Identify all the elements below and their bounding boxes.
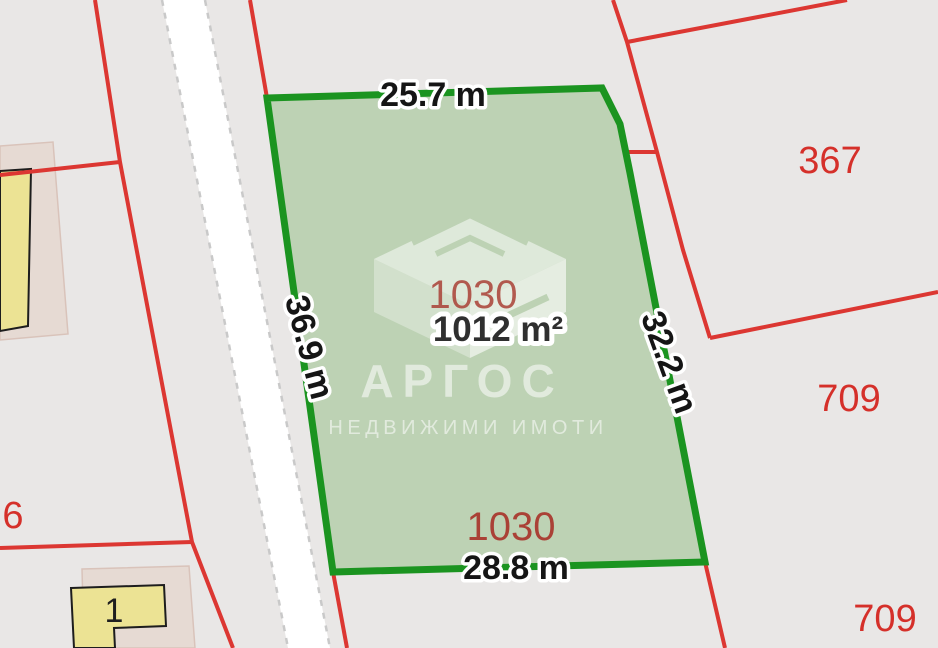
building-top-left — [0, 169, 31, 331]
map-canvas[interactable]: АРГОС НЕДВИЖИМИ ИМОТИ 1030 1012 m² 25.7 … — [0, 0, 938, 648]
watermark-tagline: НЕДВИЖИМИ ИМОТИ — [328, 417, 607, 439]
building-number-label: 1 — [105, 592, 124, 630]
parcel-709-right-label: 709 — [817, 378, 880, 420]
dimension-bottom-label: 28.8 m — [463, 549, 569, 587]
parcel-367-label: 367 — [798, 140, 861, 182]
parcel-number-bottom-label: 1030 — [467, 505, 556, 549]
cadastral-map: АРГОС НЕДВИЖИМИ ИМОТИ 1030 1012 m² 25.7 … — [0, 0, 938, 648]
watermark-brand: АРГОС — [360, 355, 563, 407]
parcel-area-label: 1012 m² — [433, 310, 563, 349]
parcel-6-label: 6 — [2, 495, 23, 537]
dimension-top-label: 25.7 m — [380, 76, 486, 114]
parcel-709-bottom-label: 709 — [853, 598, 916, 640]
